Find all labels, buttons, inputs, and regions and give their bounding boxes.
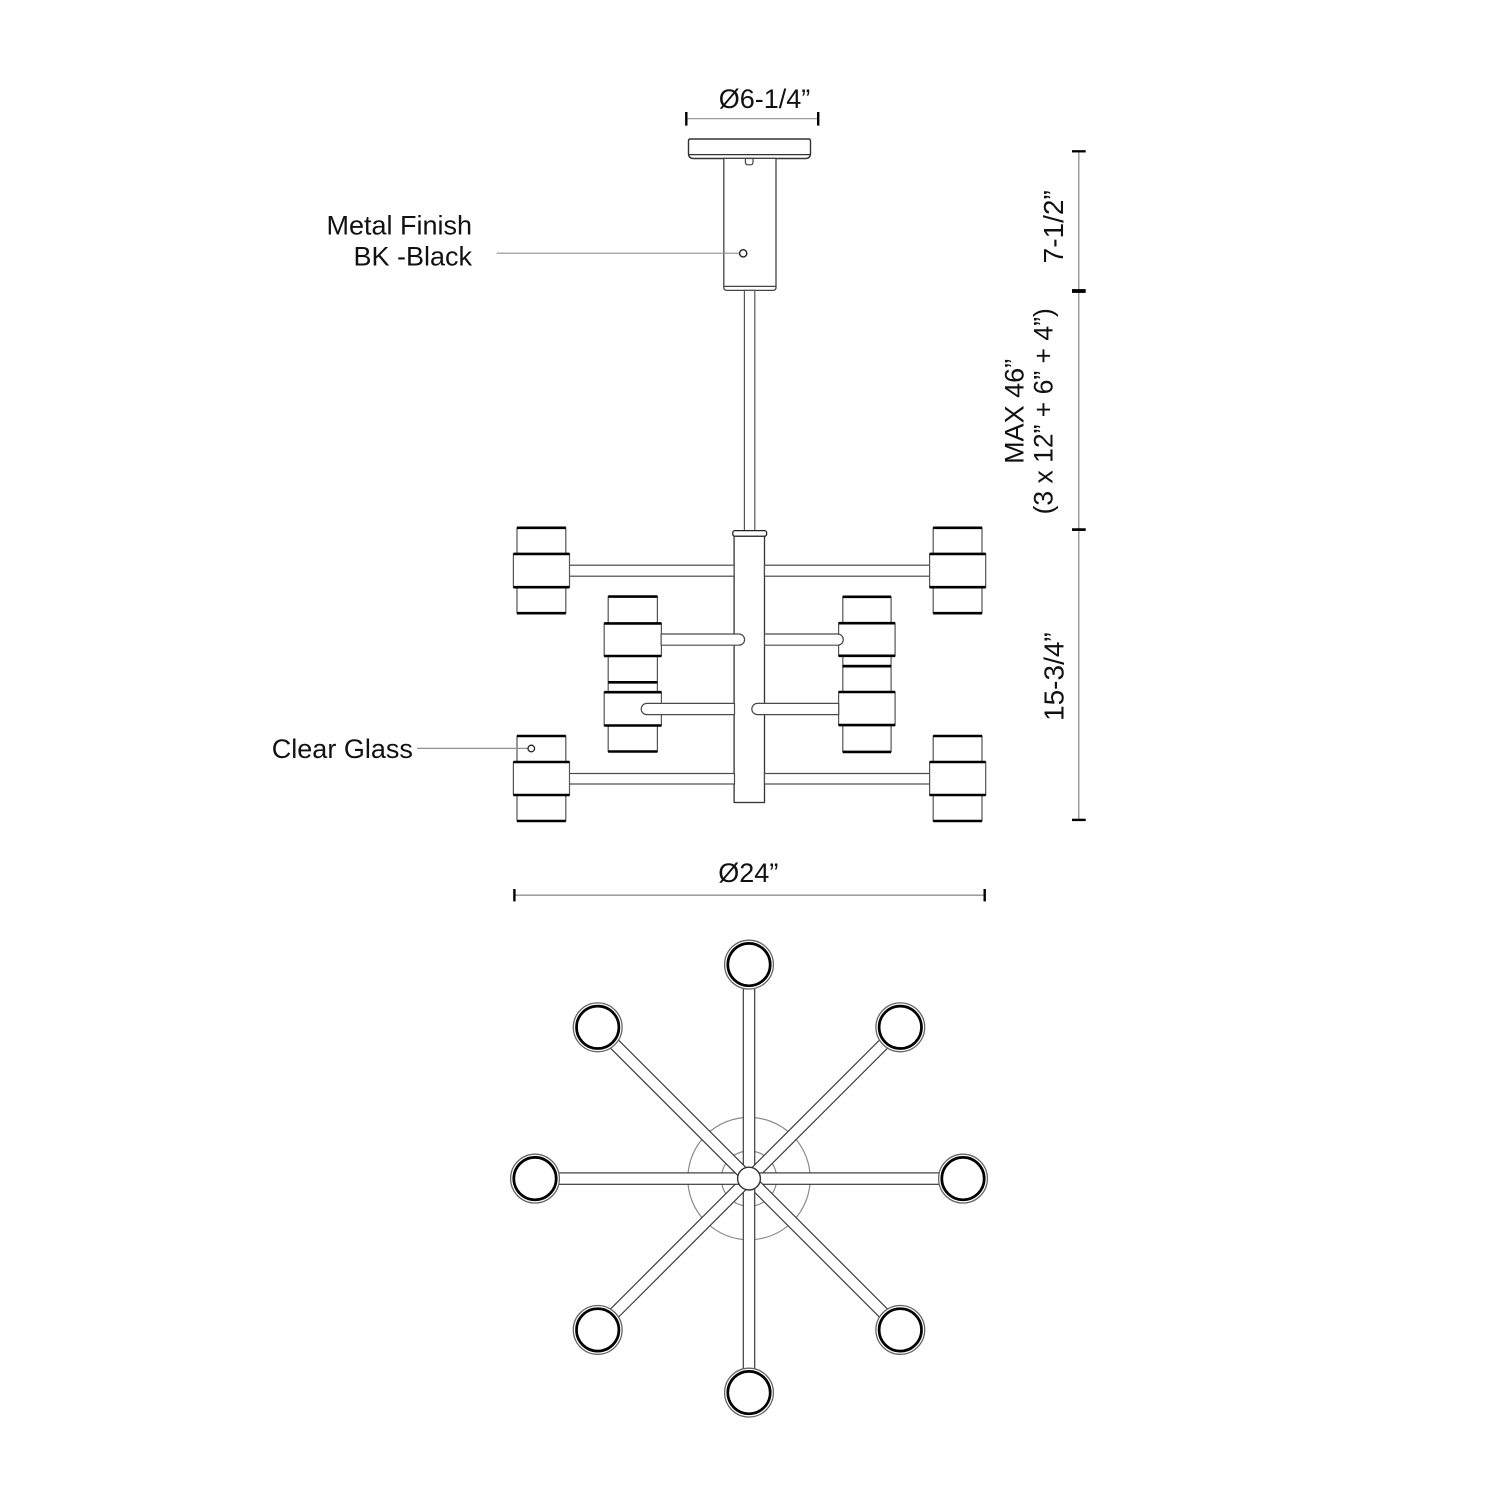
svg-text:15-3/4”: 15-3/4” bbox=[1039, 632, 1070, 721]
svg-text:Clear Glass: Clear Glass bbox=[272, 734, 413, 764]
svg-text:(3 x 12” + 6” + 4”): (3 x 12” + 6” + 4”) bbox=[1029, 308, 1059, 514]
svg-text:7-1/2”: 7-1/2” bbox=[1038, 190, 1069, 263]
svg-text:BK -Black: BK -Black bbox=[353, 242, 472, 272]
svg-text:Ø24”: Ø24” bbox=[718, 858, 778, 888]
svg-text:Metal Finish: Metal Finish bbox=[326, 211, 472, 241]
svg-text:MAX 46”: MAX 46” bbox=[1000, 359, 1030, 464]
svg-text:Ø6-1/4”: Ø6-1/4” bbox=[719, 84, 811, 114]
